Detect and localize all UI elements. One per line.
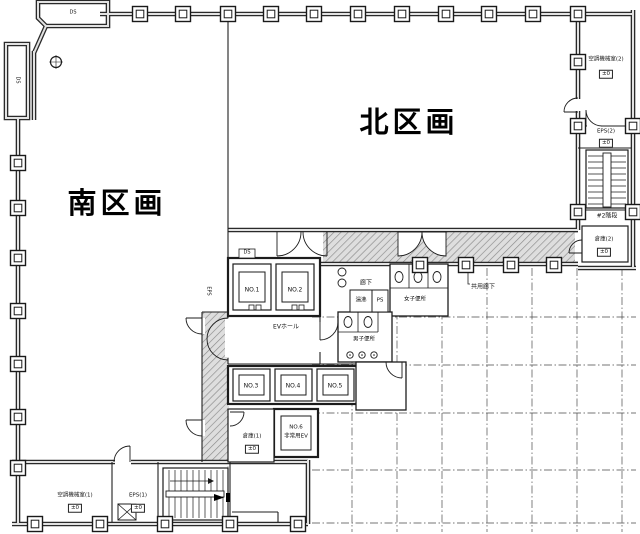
elevator-no5-label: NO.5 bbox=[328, 383, 343, 390]
womens-toilet-label: 女子便所 bbox=[404, 297, 426, 304]
elevator-bank-1 bbox=[228, 258, 320, 316]
elevator-no3-label: NO.3 bbox=[244, 383, 259, 390]
eps-1-level: ±0 bbox=[131, 504, 145, 513]
corner-column-circle bbox=[49, 55, 63, 69]
storage-1-label: 倉庫(1) bbox=[243, 434, 262, 441]
machine-room-2-label: 空調機械室(2) bbox=[588, 57, 623, 64]
vestibule-room bbox=[356, 362, 406, 410]
storage-2-label: 倉庫(2) bbox=[595, 237, 614, 244]
machine-room-2-level: ±0 bbox=[599, 70, 613, 79]
storage-2-room bbox=[582, 226, 628, 262]
corridor-label: 廊下 bbox=[360, 280, 372, 287]
stair-2-label: #2階段 bbox=[597, 213, 618, 220]
stair-1 bbox=[163, 468, 228, 520]
eps-1-label: EPS(1) bbox=[129, 493, 147, 500]
floorplan-page: 南区画 北区画 DS DS DS EPS 空調機械室(2) ±0 EPS(2) … bbox=[0, 0, 640, 534]
elevator-no6-label: NO.6 bbox=[289, 425, 302, 432]
north-section-label: 北区画 bbox=[359, 99, 458, 141]
ds-top-label: DS bbox=[69, 10, 76, 17]
machine-room-1-label: 空調機械室(1) bbox=[57, 493, 92, 500]
ds-core-label: DS bbox=[243, 250, 250, 257]
eps-2-level: ±0 bbox=[599, 139, 613, 148]
stair-2 bbox=[586, 150, 628, 208]
floorplan-svg bbox=[0, 0, 640, 534]
storage-2-level: ±0 bbox=[597, 248, 611, 257]
mens-toilet-label: 男子便所 bbox=[353, 337, 375, 344]
machine-room-1-level: ±0 bbox=[68, 504, 82, 513]
hot-water-label: 湯沸 bbox=[355, 298, 366, 305]
elevator-no1-label: NO.1 bbox=[245, 287, 260, 294]
corridor-note-label: 共用廊下 bbox=[471, 282, 495, 291]
ev-hall-label: EVホール bbox=[273, 324, 299, 331]
eps-2-label: EPS(2) bbox=[597, 129, 615, 136]
eps-core-label: EPS bbox=[205, 286, 212, 295]
elevator-no6-sub-label: 非常用EV bbox=[284, 434, 308, 441]
storage-1-level: ±0 bbox=[245, 445, 259, 454]
south-section-label: 南区画 bbox=[67, 180, 166, 222]
elevator-no4-label: NO.4 bbox=[286, 383, 301, 390]
elevator-no2-label: NO.2 bbox=[288, 287, 303, 294]
ds-left-label: DS bbox=[14, 76, 21, 83]
ps-label: PS bbox=[377, 298, 384, 305]
